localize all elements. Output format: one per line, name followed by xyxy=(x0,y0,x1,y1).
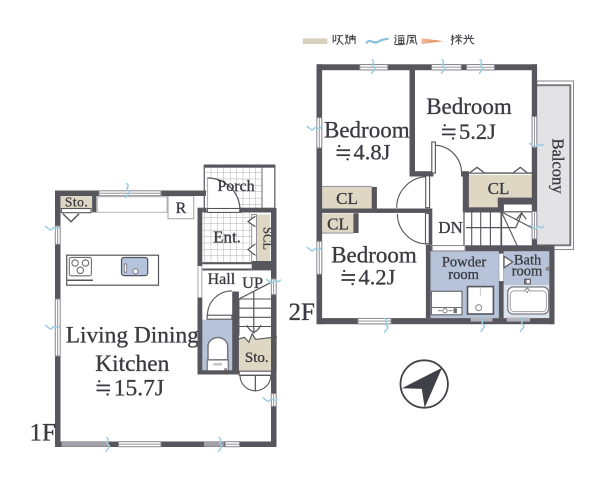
svg-text:Ent.: Ent. xyxy=(213,227,241,246)
svg-text:Porch: Porch xyxy=(217,178,254,195)
svg-text:1F: 1F xyxy=(30,420,56,447)
svg-text:UP: UP xyxy=(242,273,263,292)
svg-text:15.7J: 15.7J xyxy=(114,375,164,401)
svg-text:Living Dining: Living Dining xyxy=(66,323,199,349)
svg-text:4.8J: 4.8J xyxy=(354,140,391,165)
svg-text:room: room xyxy=(512,264,543,280)
svg-text:CL: CL xyxy=(336,189,358,208)
svg-text:Sto.: Sto. xyxy=(65,194,88,209)
svg-text:4.2J: 4.2J xyxy=(359,265,396,290)
svg-text:R: R xyxy=(176,200,187,217)
svg-text:5.2J: 5.2J xyxy=(459,119,496,144)
svg-text:Kitchen: Kitchen xyxy=(95,351,169,377)
svg-text:Balcony: Balcony xyxy=(549,139,568,195)
svg-text:DN: DN xyxy=(438,218,463,237)
svg-text:CL: CL xyxy=(488,179,510,198)
svg-text:Bedroom: Bedroom xyxy=(324,117,410,142)
svg-text:room: room xyxy=(448,267,479,283)
svg-text:Hall: Hall xyxy=(208,271,236,288)
svg-text:CL: CL xyxy=(327,214,349,233)
svg-text:2F: 2F xyxy=(289,299,315,326)
svg-text:Bedroom: Bedroom xyxy=(426,94,512,119)
svg-text:Sto.: Sto. xyxy=(245,350,269,366)
